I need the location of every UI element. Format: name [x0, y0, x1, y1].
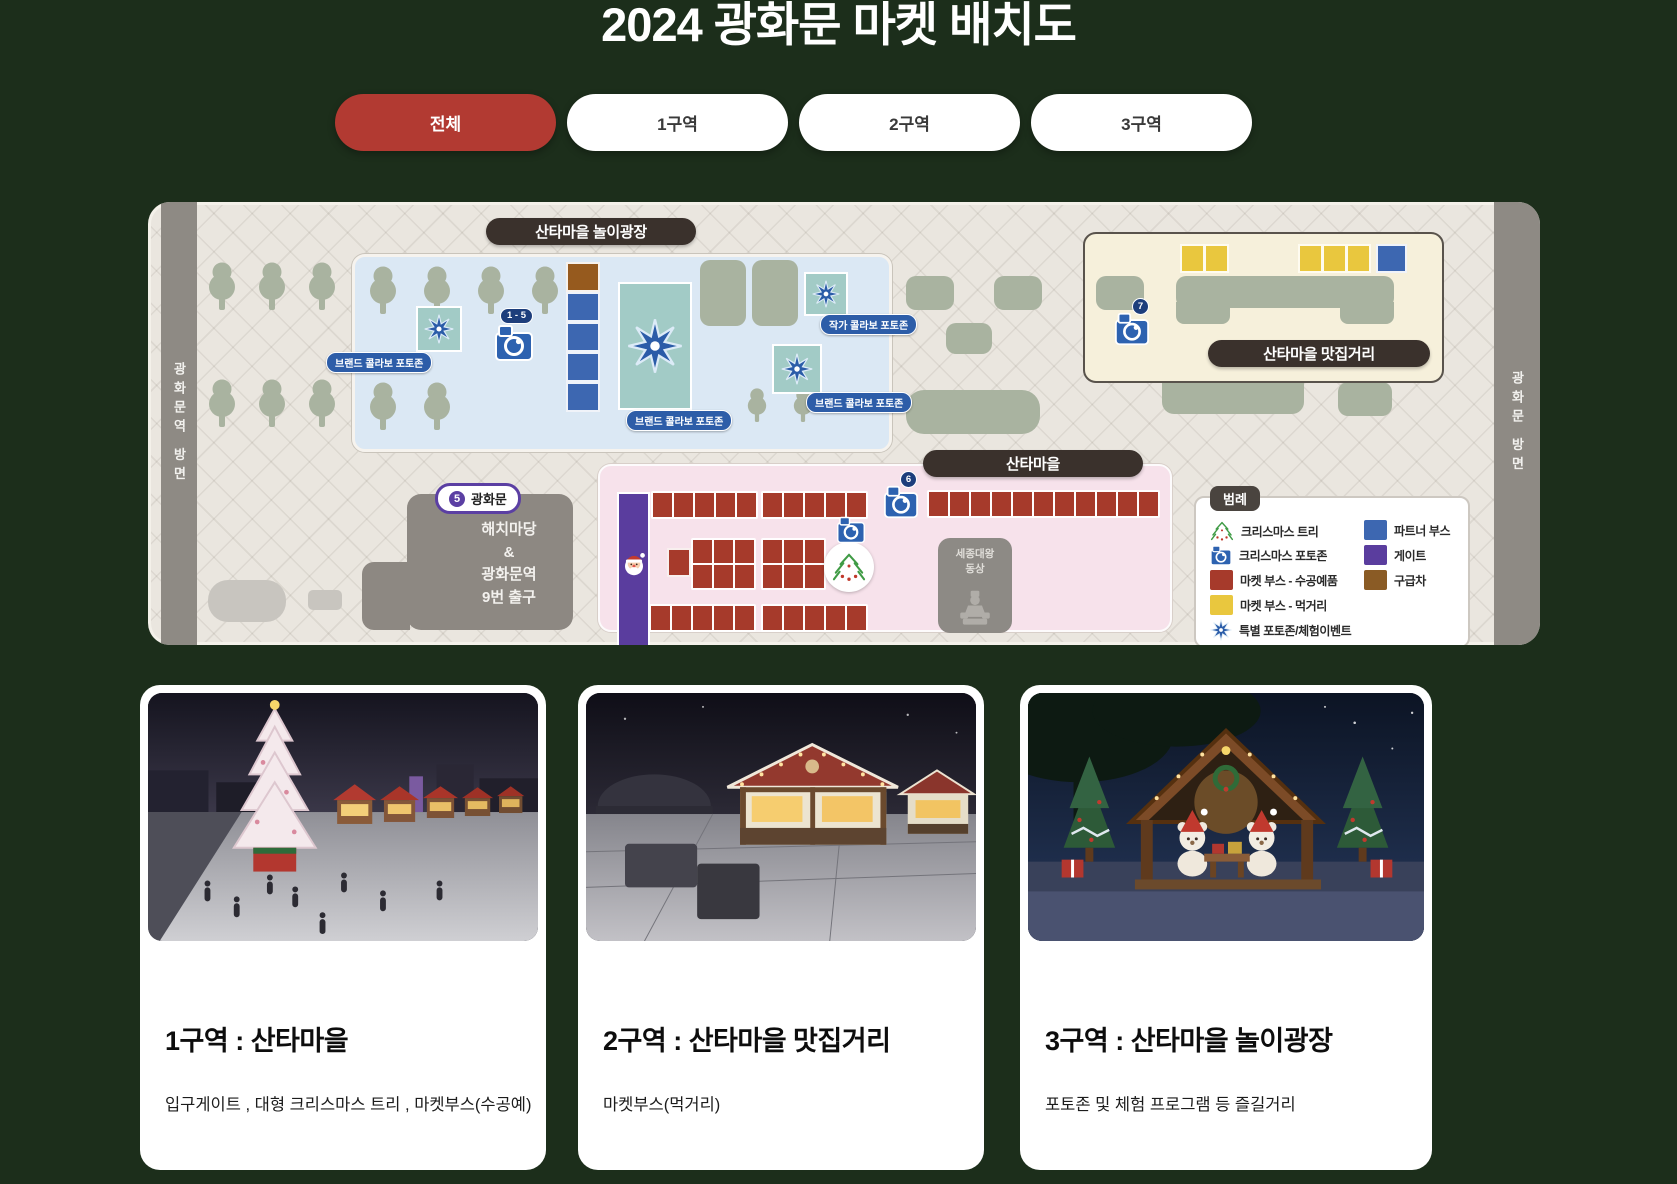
photozone-number-badge: 7 [1132, 298, 1149, 315]
camera-icon [883, 485, 919, 519]
planter [1338, 382, 1392, 416]
zone2-card-title: 2구역 : 산타마을 맛집거리 [603, 1019, 890, 1058]
partner-booth [566, 382, 600, 412]
page: 2024 광화문 마켓 배치도 전체 1구역 2구역 3구역 광화문역 방면 광… [0, 0, 1677, 1184]
zone3-card-title: 3구역 : 산타마을 놀이광장 [1045, 1019, 1332, 1058]
tree-icon [205, 260, 239, 312]
gate-swatch [1364, 545, 1387, 565]
zone2-card: 2구역 : 산타마을 맛집거리 마켓부스(먹거리) [578, 685, 984, 1170]
subway-station-badge: 5 광화문 [435, 483, 521, 514]
planter [700, 260, 746, 326]
special-photozone [416, 306, 462, 352]
tree-icon [255, 377, 289, 429]
santa-icon [622, 550, 646, 577]
photozone-label: 브랜드 콜라보 포토존 [326, 352, 432, 373]
tree-icon [366, 264, 400, 316]
tab-zone1[interactable]: 1구역 [567, 94, 788, 151]
sejong-statue: 세종대왕 동상 [938, 538, 1012, 633]
legend-item: 특별 포토존/체험이벤트 [1210, 619, 1351, 641]
zone3-scene [1028, 693, 1424, 941]
partner-booth [1376, 244, 1407, 273]
zone2-banner: 산타마을 맛집거리 [1208, 340, 1430, 367]
partner-booth [566, 292, 600, 322]
zone1-card-title: 1구역 : 산타마을 [165, 1019, 348, 1058]
zone-tab-bar: 전체 1구역 2구역 3구역 [335, 94, 1252, 151]
food-street-structure [1176, 302, 1230, 324]
tree-icon [305, 260, 339, 312]
star-icon [627, 318, 683, 374]
camera-icon [494, 324, 534, 362]
planter [906, 276, 954, 310]
legend-item: 크리스마스 트리 [1210, 520, 1318, 542]
tree-icon [305, 377, 339, 429]
partner-booth [566, 322, 600, 352]
legend-item: 파트너 부스 [1364, 520, 1450, 540]
star-icon [812, 280, 840, 308]
christmas-tree-icon [832, 551, 866, 583]
zone2-card-desc: 마켓부스(먹거리) [603, 1091, 720, 1115]
special-photozone-large [618, 282, 692, 410]
entrance-gate [617, 492, 650, 645]
star-icon [424, 314, 454, 344]
photozone-number-badge: 1 - 5 [500, 308, 533, 324]
pavement-shape [308, 590, 342, 610]
zone3-card: 3구역 : 산타마을 놀이광장 포토존 및 체험 프로그램 등 즐길거리 [1020, 685, 1432, 1170]
road-left: 광화문역 방면 [161, 202, 197, 645]
food-booth-swatch [1210, 595, 1233, 615]
legend-item: 마켓 부스 - 먹거리 [1210, 595, 1327, 615]
photozone-label: 작가 콜라보 포토존 [820, 314, 917, 335]
food-street-structure [1340, 302, 1394, 324]
tab-all[interactable]: 전체 [335, 94, 556, 151]
camera-icon [1114, 312, 1150, 346]
tree-icon [420, 380, 454, 432]
legend-title: 범례 [1210, 486, 1260, 511]
tab-zone3[interactable]: 3구역 [1031, 94, 1252, 151]
road-right-label: 광화문 방면 [1508, 371, 1527, 476]
legend-item: 크리스마스 포토존 [1210, 545, 1327, 566]
zone3-banner: 산타마을 놀이광장 [486, 218, 696, 245]
craft-booth-swatch [1210, 570, 1233, 590]
planter [906, 390, 1040, 434]
tree-icon [366, 380, 400, 432]
food-booth [1204, 244, 1229, 273]
subway-line-number: 5 [449, 491, 465, 507]
zone3-card-desc: 포토존 및 체험 프로그램 등 즐길거리 [1045, 1091, 1296, 1115]
haechi-madang-building [362, 562, 410, 630]
food-booth [1322, 244, 1347, 273]
craft-booth-block [761, 538, 826, 590]
haechi-madang-label: 해치마당 & 광화문역 9번 출구 [450, 519, 568, 609]
special-photozone [804, 272, 848, 316]
planter [994, 276, 1042, 310]
craft-booth-row [927, 490, 1160, 518]
legend: 범례 크리스마스 트리 크리스마스 포토존 마켓 부스 - 수공예품 마켓 부스… [1194, 496, 1470, 645]
food-booth [1180, 244, 1205, 273]
craft-booth-row [651, 491, 758, 519]
craft-booth-row [761, 491, 868, 519]
photozone-label: 브랜드 콜라보 포토존 [806, 392, 912, 413]
star-icon [1210, 619, 1232, 641]
pavement-shape [208, 580, 286, 622]
star-icon [781, 353, 813, 385]
legend-item: 구급차 [1364, 570, 1426, 590]
planter [752, 260, 798, 326]
tree-icon [255, 260, 289, 312]
tab-zone2[interactable]: 2구역 [799, 94, 1020, 151]
tree-icon [528, 264, 562, 316]
food-booth [1346, 244, 1371, 273]
tree-icon [205, 377, 239, 429]
craft-booth-block [691, 538, 756, 590]
partner-booth-swatch [1364, 520, 1387, 540]
statue-icon [948, 589, 1002, 629]
zone3-card-image [1028, 693, 1424, 941]
special-photozone [772, 344, 822, 394]
camera-icon [836, 516, 866, 544]
market-map: 광화문역 방면 광화문 방면 산타마을 놀이광장 브랜드 콜라보 포토존 1 -… [148, 202, 1540, 645]
first-aid-swatch [1364, 570, 1387, 590]
zone2-card-image [586, 693, 976, 941]
legend-item: 게이트 [1364, 545, 1426, 565]
christmas-tree-spot [824, 542, 874, 592]
photozone-number-badge: 6 [900, 471, 917, 488]
planter [946, 323, 992, 354]
food-booth [1298, 244, 1323, 273]
zone1-banner: 산타마을 [923, 450, 1143, 477]
craft-booth-row [761, 604, 868, 632]
legend-item: 마켓 부스 - 수공예품 [1210, 570, 1338, 590]
christmas-tree-icon [1210, 520, 1234, 542]
zone2-scene [586, 693, 976, 941]
zone1-card: 1구역 : 산타마을 입구게이트 , 대형 크리스마스 트리 , 마켓부스(수공… [140, 685, 546, 1170]
zone1-card-desc: 입구게이트 , 대형 크리스마스 트리 , 마켓부스(수공예) [165, 1091, 531, 1115]
road-left-label: 광화문역 방면 [170, 362, 189, 486]
zone1-scene [148, 693, 538, 941]
craft-booth-row [649, 604, 756, 632]
camera-icon [1210, 545, 1232, 566]
page-title: 2024 광화문 마켓 배치도 [0, 0, 1677, 55]
craft-booth [667, 548, 691, 577]
photozone-label: 브랜드 콜라보 포토존 [626, 410, 732, 431]
subway-station-name: 광화문 [471, 489, 507, 508]
zone1-card-image [148, 693, 538, 941]
partner-booth [566, 352, 600, 382]
first-aid-booth [566, 262, 600, 292]
tree-icon [745, 386, 769, 424]
road-right: 광화문 방면 [1494, 202, 1540, 645]
